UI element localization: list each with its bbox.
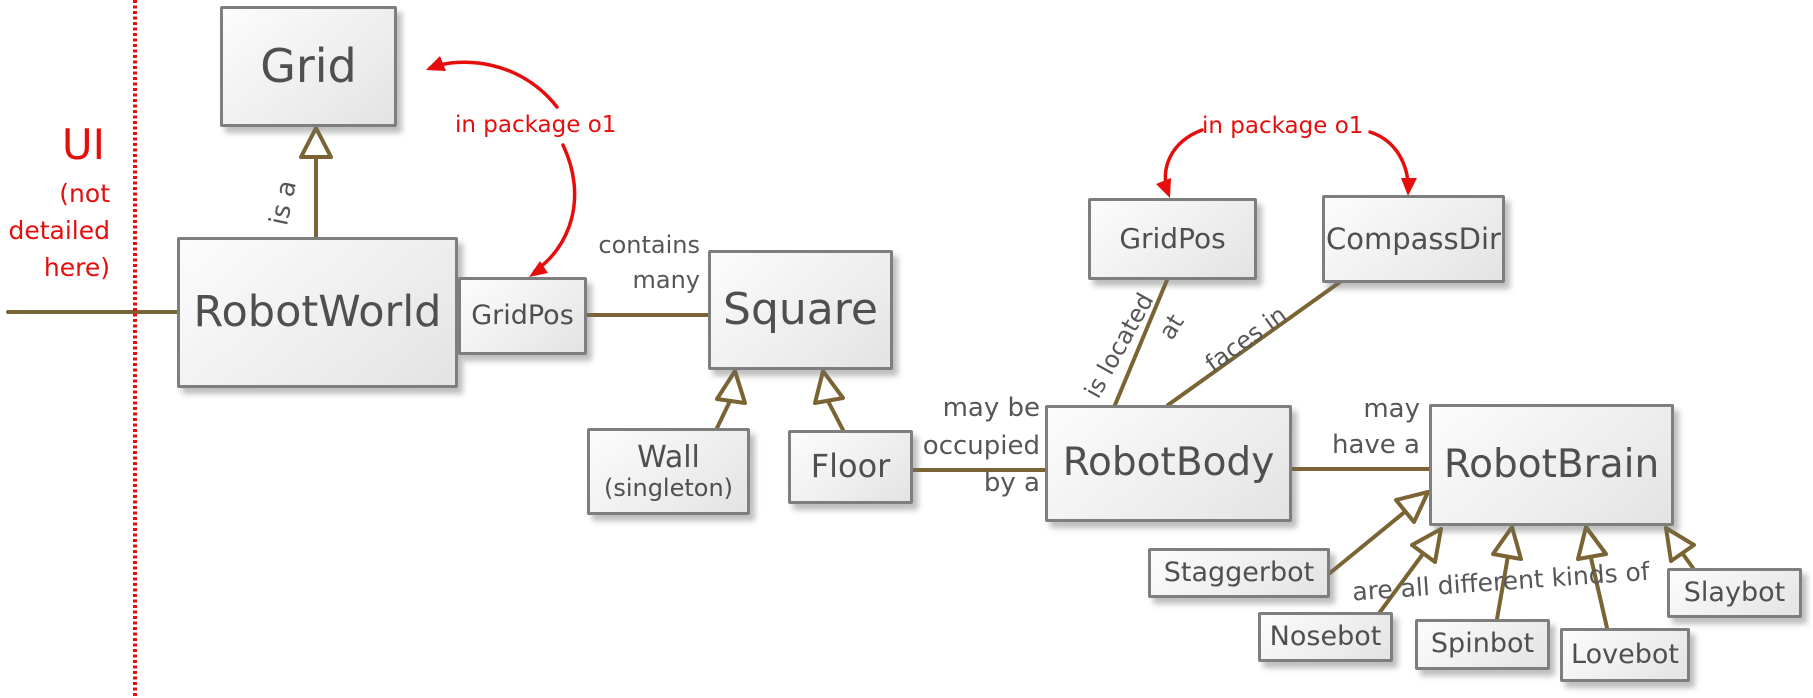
annotation-arrowhead-gridpos-body	[1156, 178, 1171, 198]
inheritance-arrow-grid	[301, 128, 331, 157]
package-annotation-left: in package o1	[455, 112, 630, 138]
class-box-lovebot: Lovebot	[1560, 628, 1690, 682]
class-label: RobotBrain	[1444, 445, 1659, 486]
inheritance-arrow-nosebot	[1412, 529, 1441, 562]
class-label: Floor	[811, 450, 891, 484]
class-label: Spinbot	[1431, 630, 1534, 658]
class-label: Grid	[260, 42, 357, 90]
class-box-gridpos-body: GridPos	[1088, 198, 1257, 280]
edge-wall-square	[717, 399, 731, 428]
annotation-arrowhead-compassdir	[1401, 178, 1417, 196]
class-box-robotbody: RobotBody	[1045, 405, 1292, 522]
edge-staggerbot-robotbrain	[1330, 506, 1412, 573]
class-label: CompassDir	[1326, 224, 1501, 254]
ui-region-note: (not detailed here)	[0, 176, 110, 286]
relation-label-contains-many: contains many	[558, 228, 700, 298]
class-box-staggerbot: Staggerbot	[1148, 548, 1330, 598]
class-box-wall: Wall (singleton)	[587, 428, 750, 515]
annotation-arrow-to-gridpos-body	[1165, 130, 1202, 192]
class-sublabel: (singleton)	[604, 476, 733, 501]
class-box-robotworld: RobotWorld	[177, 237, 458, 388]
class-box-square: Square	[708, 250, 893, 370]
class-label: RobotWorld	[194, 290, 442, 335]
class-diagram-canvas: Grid RobotWorld GridPos Square Wall (sin…	[0, 0, 1813, 698]
class-label: Slaybot	[1684, 579, 1785, 607]
inheritance-arrow-spinbot	[1493, 527, 1521, 559]
class-box-spinbot: Spinbot	[1415, 619, 1550, 670]
relation-label-may-be-occupied: may be occupied by a	[900, 390, 1040, 503]
annotation-arrow-to-grid	[430, 62, 557, 107]
class-box-robotbrain: RobotBrain	[1429, 404, 1674, 526]
class-box-slaybot: Slaybot	[1667, 568, 1802, 618]
class-label: GridPos	[1119, 224, 1225, 253]
ui-region-title: UI	[30, 120, 105, 169]
ui-boundary-dotted-line	[133, 0, 137, 698]
class-box-grid: Grid	[220, 6, 397, 127]
edge-floor-square	[828, 401, 843, 430]
class-box-nosebot: Nosebot	[1258, 612, 1393, 662]
class-label: Nosebot	[1270, 623, 1382, 651]
inheritance-arrow-slaybot	[1666, 528, 1694, 561]
relation-label-may-have-a: may have a	[1290, 391, 1420, 464]
class-label: Staggerbot	[1164, 559, 1315, 587]
class-box-compassdir: CompassDir	[1322, 195, 1505, 283]
class-label: RobotBody	[1063, 443, 1275, 484]
annotation-arrowhead-grid	[426, 56, 446, 71]
inheritance-arrow-wall	[717, 371, 745, 403]
inheritance-arrow-floor	[815, 371, 843, 403]
class-label: Wall	[637, 442, 700, 474]
class-label: Square	[723, 287, 878, 333]
class-label: GridPos	[471, 302, 574, 330]
class-box-floor: Floor	[788, 430, 913, 504]
inheritance-arrow-lovebot	[1578, 527, 1606, 559]
package-annotation-right: in package o1	[1202, 113, 1377, 139]
class-label: Lovebot	[1571, 641, 1679, 669]
